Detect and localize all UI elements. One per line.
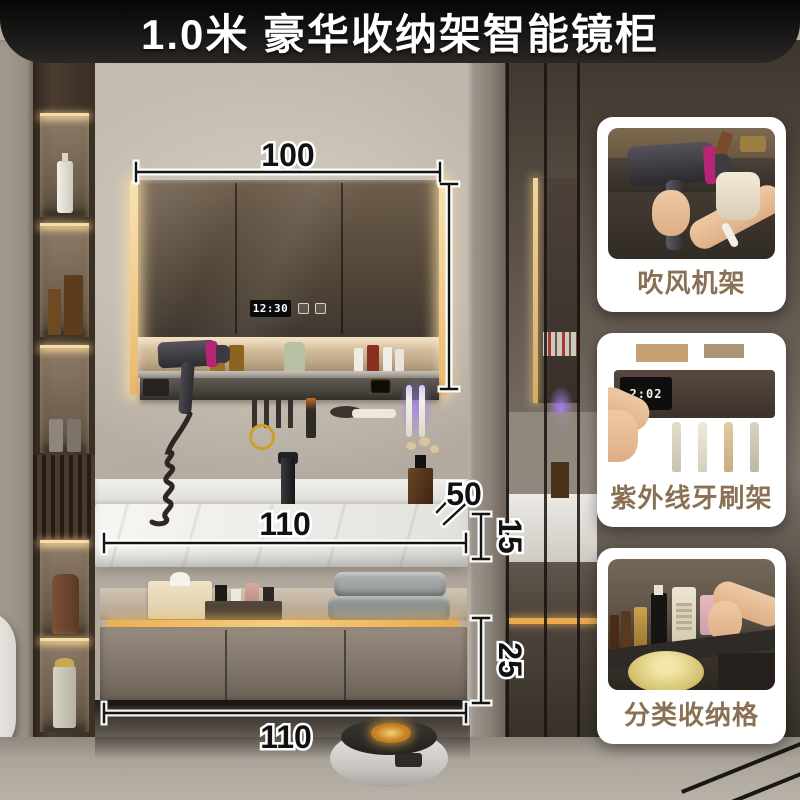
amber-bottle (64, 275, 83, 335)
toothbrush (698, 422, 707, 472)
folded-towel (334, 572, 446, 597)
faucet (281, 458, 295, 508)
razor (306, 398, 316, 438)
cabinet-drawers (100, 627, 467, 706)
mirror-clock-display: 12:30 (250, 300, 291, 317)
niche-shelf (40, 113, 89, 217)
reflected-countertop (509, 494, 597, 562)
product-image: 12:30 (0, 0, 800, 800)
green-bottle (284, 342, 305, 372)
tissue-box (148, 581, 212, 619)
marble-cup (716, 172, 760, 220)
pump-top (62, 153, 68, 163)
shelf-items (636, 344, 688, 362)
drawer-seam (225, 630, 227, 703)
dropper-bottle (621, 611, 631, 649)
mirror-led-left (130, 180, 138, 395)
bottle-label (676, 603, 692, 633)
marble-countertop (95, 504, 468, 567)
drawer-seam (344, 630, 346, 703)
niche-led-strip (40, 113, 89, 116)
title-banner: 1.0米 豪华收纳架智能镜柜 (0, 0, 800, 63)
cosmetics (740, 136, 766, 152)
dropper-bottle (610, 615, 619, 649)
glass-frame (506, 40, 509, 760)
gold-lid (55, 658, 74, 667)
tissue (170, 572, 190, 586)
light-icon (315, 303, 326, 314)
niche-shelf (40, 638, 89, 732)
defog-icon (298, 303, 309, 314)
glass-canister (53, 666, 76, 728)
hook (252, 398, 257, 428)
niche-shelf (40, 345, 89, 453)
glass-frame (577, 40, 580, 760)
shelf-items (704, 344, 744, 358)
reflected-cabinet-led (509, 618, 597, 624)
black-bottle (651, 593, 667, 647)
hook (288, 398, 293, 428)
dispenser-bottle (67, 419, 81, 452)
reflected-bottles (543, 332, 577, 356)
cabinet-led-strip (108, 620, 459, 627)
feature-card-hairdryer: 吹风机架 (597, 117, 786, 312)
hand (652, 190, 690, 236)
robot-vacuum-sensor (395, 753, 422, 767)
niche-led-strip (40, 345, 89, 348)
sterilizer-display (370, 379, 391, 394)
page-title: 1.0米 豪华收纳架智能镜柜 (141, 1, 659, 62)
feature-photo-storage (608, 559, 775, 690)
hand (608, 410, 638, 462)
reflected-led-strip (533, 178, 538, 403)
red-bottle (367, 345, 379, 372)
feature-label: 分类收纳格 (597, 695, 786, 732)
hair-dryer-nozzle (216, 345, 230, 363)
white-tube (383, 347, 392, 372)
dried-flower (430, 445, 439, 453)
feature-card-toothbrush: 2:02 紫外线牙刷架 (597, 333, 786, 527)
feature-photo-hairdryer (608, 128, 775, 259)
cosmetic-tube (352, 409, 396, 418)
yellow-bowl (628, 651, 704, 690)
glass-frame (544, 40, 547, 760)
uv-glow (398, 378, 434, 438)
dark-box (718, 653, 775, 690)
toothbrush (750, 422, 759, 472)
dispenser-bottle (49, 419, 63, 452)
dried-flower (419, 437, 430, 446)
bottle-cap (654, 585, 663, 595)
feature-photo-toothbrush: 2:02 (608, 344, 775, 475)
amber-bottle (48, 289, 61, 335)
mirror-clock-time: 12:30 (253, 302, 289, 315)
gold-bottle (634, 607, 647, 649)
niche-led-strip (40, 223, 89, 226)
white-tube (395, 349, 404, 372)
mirror-led-right (439, 180, 447, 395)
mirror-door-seam (341, 183, 343, 334)
robot-vacuum-light (371, 723, 411, 743)
toothbrush (419, 385, 425, 437)
toothbrush (724, 422, 733, 472)
niche-shelf (40, 223, 89, 337)
perfume-cap (415, 455, 426, 469)
niche-led-strip (40, 540, 89, 543)
toilet-edge (0, 612, 16, 754)
gold-ring-holder (249, 424, 275, 450)
marble-pillar (468, 40, 505, 800)
toothbrush (406, 385, 412, 437)
pump-bottle (57, 161, 73, 213)
feature-card-storage: 分类收纳格 (597, 548, 786, 744)
wood-slat-panel (33, 455, 95, 539)
toothbrush (672, 422, 681, 472)
perfume-bottle (408, 468, 433, 508)
dried-flower (406, 442, 416, 450)
niche-shelf (40, 540, 89, 637)
white-tube (354, 348, 363, 372)
hook (276, 398, 281, 428)
feature-label: 吹风机架 (597, 263, 786, 300)
cosmetics-tray (205, 601, 282, 620)
folded-towel (328, 596, 450, 622)
feature-label: 紫外线牙刷架 (597, 478, 786, 515)
mirror-door-seam (235, 183, 237, 334)
ceramic-jar (52, 574, 79, 634)
amber-bottle (229, 345, 244, 372)
reflected-perfume (551, 462, 569, 498)
niche-led-strip (40, 638, 89, 641)
socket-module (143, 379, 169, 396)
